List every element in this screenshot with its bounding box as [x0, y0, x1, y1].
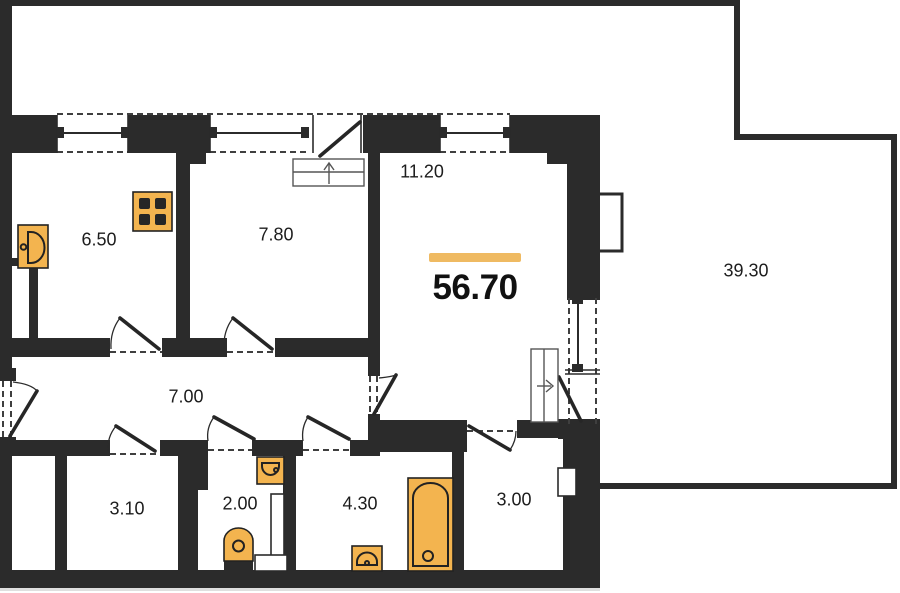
bottom-wall — [0, 570, 600, 588]
room-area-label-bathroom: 4.30 — [342, 494, 377, 515]
wc-bathroom-wall — [283, 456, 296, 570]
wc-door — [214, 417, 254, 439]
total-area-label: 56.70 — [432, 268, 517, 308]
terrace-outline — [0, 0, 897, 489]
right-wall-upper — [567, 153, 600, 300]
hall-bottom-wall — [0, 440, 110, 456]
stove-icon — [133, 192, 172, 231]
shaft-wall — [55, 456, 67, 570]
room-area-label-living: 11.20 — [400, 162, 444, 183]
left-wall-lower — [0, 437, 12, 588]
wall-niche — [558, 468, 576, 496]
right-wall-lower-block — [563, 438, 600, 588]
kitchen-sink-icon — [18, 225, 48, 268]
entry-jamb-top — [0, 368, 16, 381]
room-area-label-storage: 3.10 — [109, 499, 144, 520]
terrace-steps-right-arrow-icon — [531, 349, 558, 422]
radiator-icon — [600, 194, 622, 251]
room-area-label-wc: 2.00 — [222, 494, 257, 515]
left-wall-upper — [0, 0, 12, 381]
wc-duct-box — [255, 555, 287, 571]
hall-top-wall — [12, 338, 110, 357]
room-area-label-small-room: 3.00 — [496, 490, 531, 511]
wc-door-leaf-open — [271, 494, 284, 556]
terrace-top-door — [320, 122, 360, 156]
kitchen-bedroom-wall — [176, 153, 190, 357]
small-room-door — [469, 426, 510, 450]
total-area-underline — [429, 253, 521, 262]
bathroom-door — [308, 417, 349, 439]
entry-door — [10, 391, 37, 436]
bottom-wall-shadow — [0, 588, 600, 591]
floorplan: 6.50 7.80 11.20 7.00 3.10 2.00 4.30 3.00… — [0, 0, 900, 593]
toilet-icon — [257, 457, 284, 484]
entry-steps-up-arrow-icon — [293, 159, 364, 186]
room-area-label-bedroom: 7.80 — [258, 225, 293, 246]
bedroom-living-wall — [368, 153, 380, 376]
room-area-label-kitchen: 6.50 — [81, 230, 116, 251]
room-area-label-hallway: 7.00 — [168, 387, 203, 408]
room-area-label-terrace: 39.30 — [723, 261, 768, 282]
bathtub-icon — [408, 478, 453, 571]
water-heater-icon — [224, 528, 253, 561]
kitchen-door — [120, 318, 159, 349]
interior-walls — [0, 153, 576, 571]
washbasin-icon — [352, 546, 382, 571]
storage-door — [116, 426, 155, 451]
bedroom-door — [233, 318, 272, 349]
